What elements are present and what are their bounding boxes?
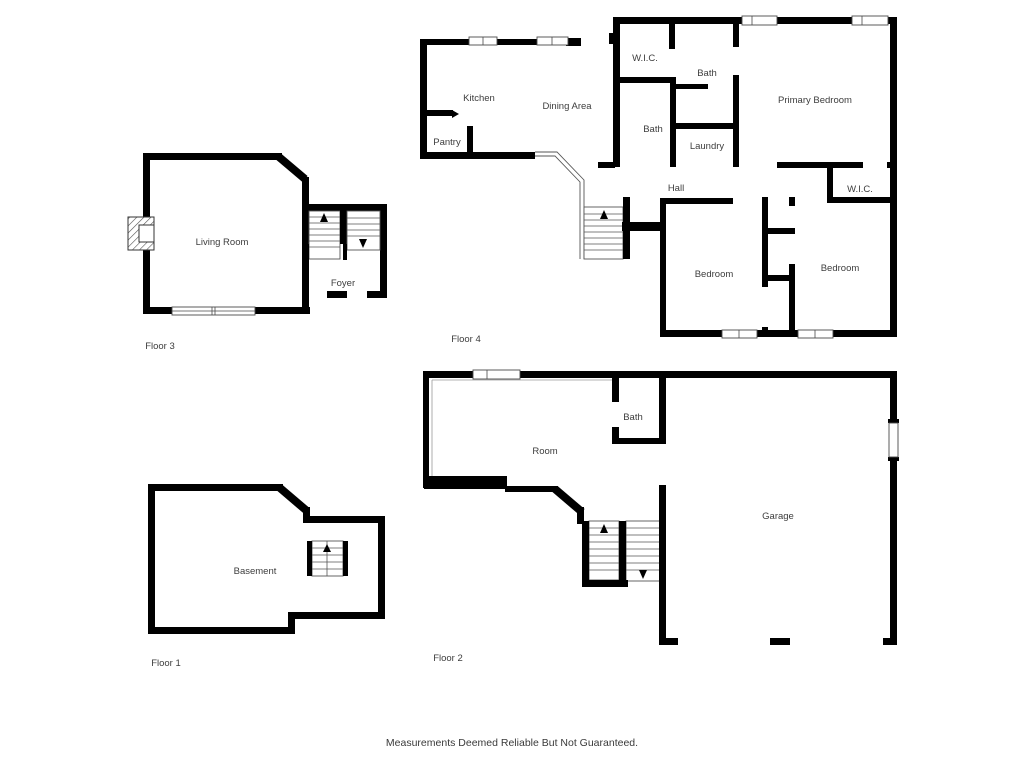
- room-label-living-room: Living Room: [196, 237, 249, 248]
- floorplan-page: Kitchen Dining Area Pantry W.I.C. Bath P…: [0, 0, 1024, 768]
- room-label-hall: Hall: [668, 183, 684, 194]
- floor4-stairs: [584, 207, 623, 259]
- window: [888, 419, 899, 461]
- floor3-stairs: [305, 204, 380, 260]
- room-label-wic-upper: W.I.C.: [632, 53, 658, 64]
- room-label-bath: Bath: [623, 412, 643, 423]
- room-label-dining-area: Dining Area: [542, 101, 592, 112]
- floor-2-plan: Room Bath Garage Floor 2: [423, 370, 899, 664]
- pantry-wall: [427, 110, 453, 116]
- floor-label-floor-4: Floor 4: [451, 334, 481, 345]
- room-label-room: Room: [532, 446, 557, 457]
- floor-label-floor-2: Floor 2: [433, 653, 463, 664]
- floor-1-plan: Basement Floor 1: [148, 484, 385, 669]
- stair-railing: [535, 152, 584, 259]
- room-label-bath-lower: Bath: [643, 124, 663, 135]
- room-label-basement: Basement: [234, 566, 277, 577]
- floorplan-canvas: Kitchen Dining Area Pantry W.I.C. Bath P…: [0, 0, 1024, 768]
- room-label-garage: Garage: [762, 511, 794, 522]
- floor-3-plan: Living Room Foyer Floor 3: [128, 153, 387, 352]
- floor-4-plan: Kitchen Dining Area Pantry W.I.C. Bath P…: [420, 16, 897, 345]
- room-label-kitchen: Kitchen: [463, 93, 495, 104]
- floor-label-floor-3: Floor 3: [145, 341, 175, 352]
- room-label-bath-upper: Bath: [697, 68, 717, 79]
- floor2-stairs: [582, 521, 660, 587]
- floor1-stairs: [307, 541, 348, 576]
- room-label-bedroom-right: Bedroom: [821, 263, 860, 274]
- window: [172, 307, 255, 315]
- room-label-laundry: Laundry: [690, 141, 725, 152]
- room-label-bedroom-left: Bedroom: [695, 269, 734, 280]
- room-label-primary-bedroom: Primary Bedroom: [778, 95, 852, 106]
- fireplace: [128, 217, 154, 250]
- room-label-pantry: Pantry: [433, 137, 461, 148]
- disclaimer-text: Measurements Deemed Reliable But Not Gua…: [386, 737, 638, 749]
- window: [473, 370, 520, 379]
- room-label-wic-lower: W.I.C.: [847, 184, 873, 195]
- room-label-foyer: Foyer: [331, 278, 355, 289]
- floor-label-floor-1: Floor 1: [151, 658, 181, 669]
